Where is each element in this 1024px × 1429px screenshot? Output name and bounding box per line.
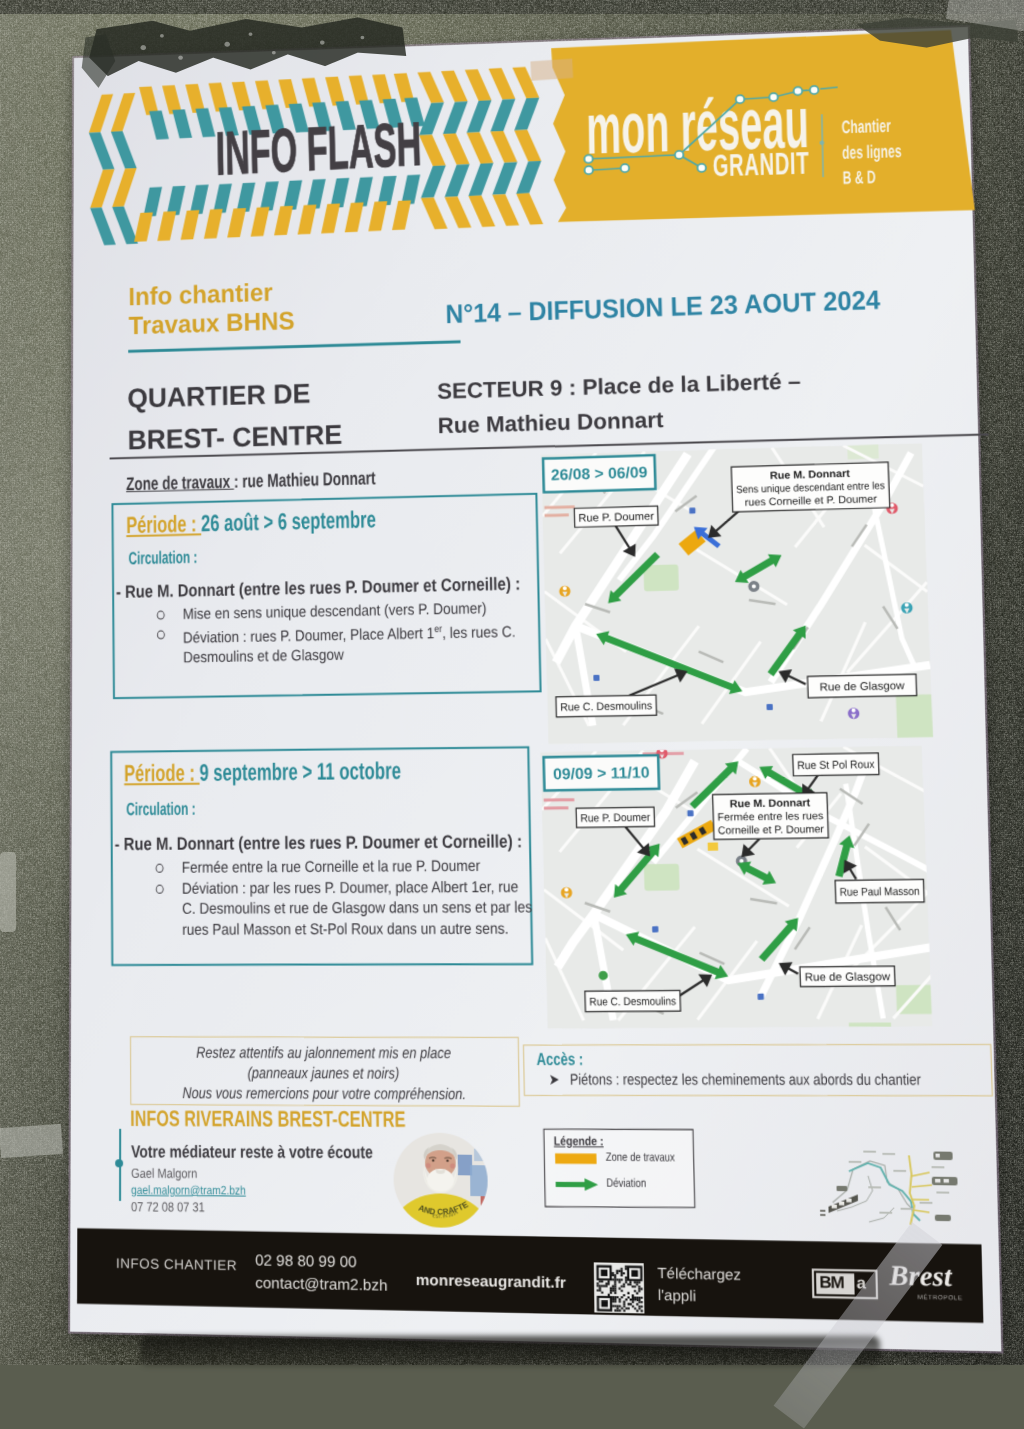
svg-text:B & D: B & D bbox=[842, 168, 876, 189]
svg-text:Rue de Glasgow: Rue de Glasgow bbox=[819, 681, 905, 695]
svg-text:Rue M. Donnart: Rue M. Donnart bbox=[730, 797, 812, 810]
svg-text:Rue St Pol Roux: Rue St Pol Roux bbox=[797, 759, 875, 772]
svg-text:GRANDIT: GRANDIT bbox=[713, 146, 810, 184]
svg-text:Rue P. Doumer: Rue P. Doumer bbox=[578, 511, 654, 525]
svg-text:09/09 > 11/10: 09/09 > 11/10 bbox=[553, 765, 650, 784]
svg-text:des lignes: des lignes bbox=[842, 142, 902, 164]
svg-text:Fermée entre les rues: Fermée entre les rues bbox=[717, 811, 823, 824]
svg-text:Corneille et P. Doumer: Corneille et P. Doumer bbox=[718, 824, 825, 837]
svg-text:Rue Paul Masson: Rue Paul Masson bbox=[840, 886, 921, 899]
svg-text:Rue M. Donnart: Rue M. Donnart bbox=[770, 468, 851, 482]
svg-text:Chantier: Chantier bbox=[841, 117, 891, 138]
svg-text:Rue P. Doumer: Rue P. Doumer bbox=[580, 812, 651, 825]
svg-text:Rue C. Desmoulins: Rue C. Desmoulins bbox=[589, 996, 676, 1009]
svg-text:Rue C. Desmoulins: Rue C. Desmoulins bbox=[560, 701, 652, 715]
svg-text:Rue de Glasgow: Rue de Glasgow bbox=[805, 971, 891, 984]
svg-text:INFO FLASH: INFO FLASH bbox=[215, 109, 422, 188]
svg-text:26/08 > 06/09: 26/08 > 06/09 bbox=[551, 465, 648, 485]
